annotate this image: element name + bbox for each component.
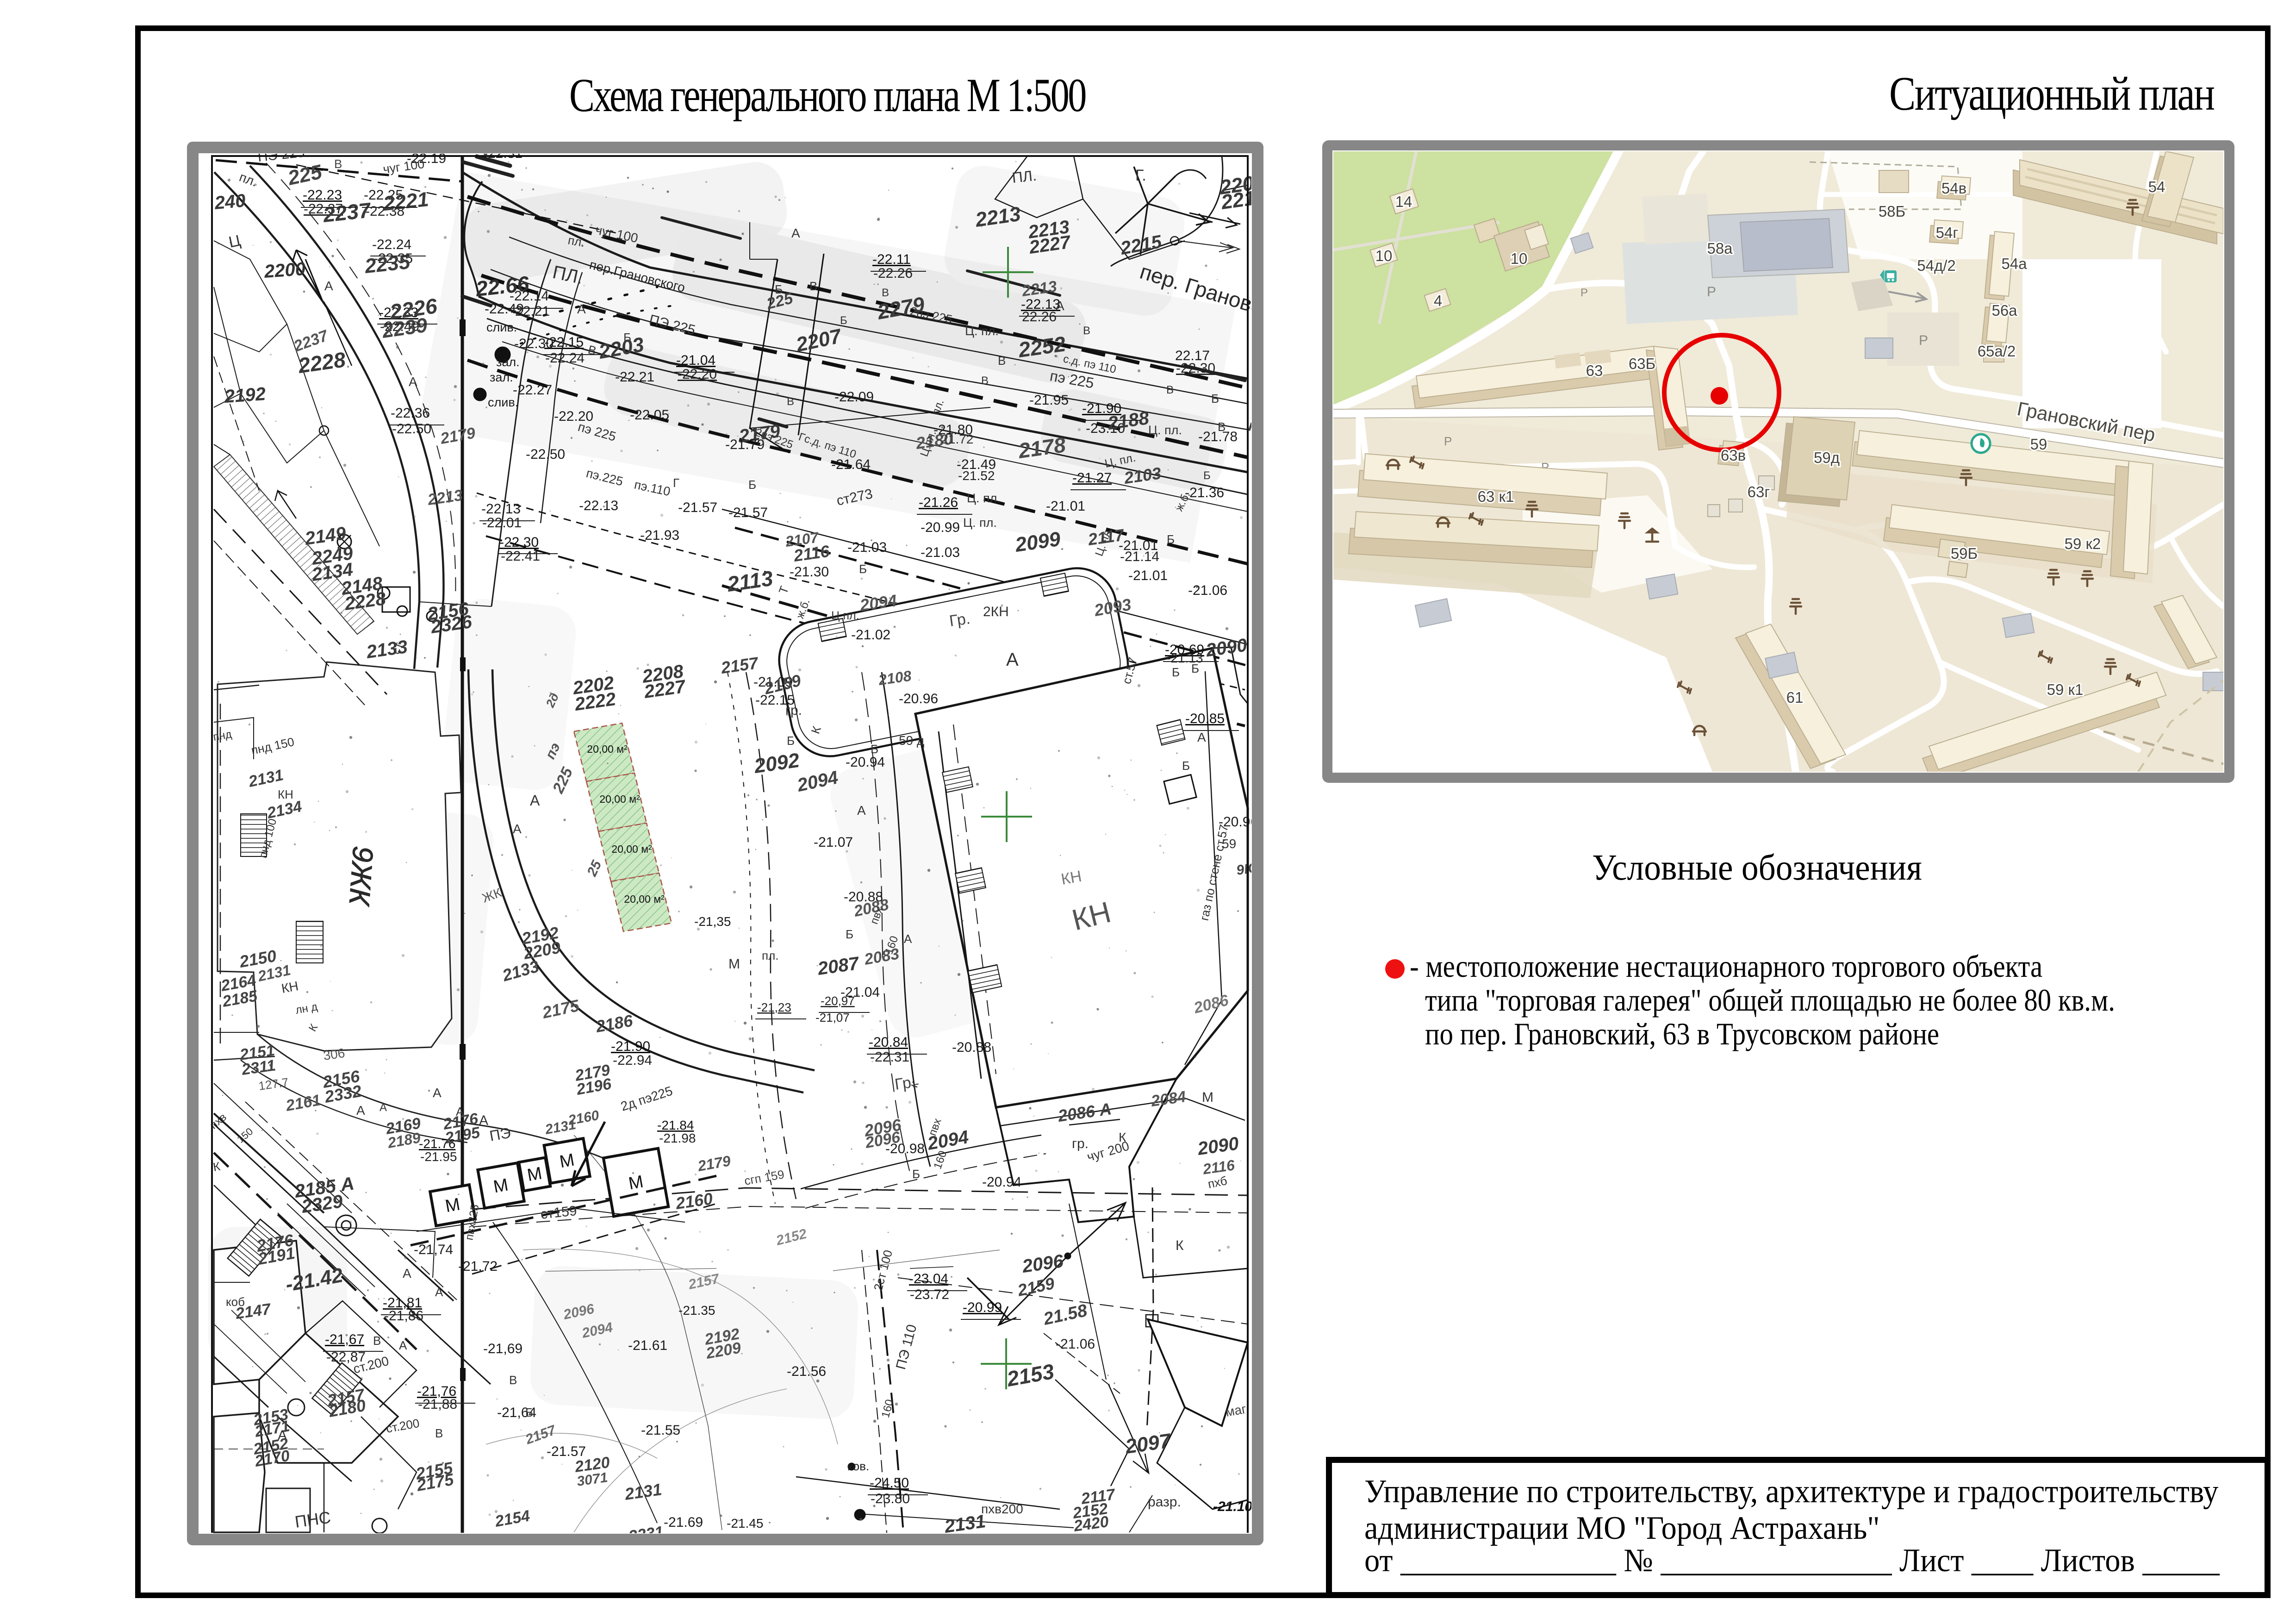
svg-text:-21.06: -21.06: [1056, 1337, 1095, 1352]
svg-text:-22.20: -22.20: [554, 409, 593, 424]
svg-text:Б: Б: [748, 478, 756, 492]
svg-text:-20.88: -20.88: [952, 1040, 991, 1055]
svg-text:-22.27: -22.27: [513, 382, 552, 398]
svg-text:59 д: 59 д: [899, 733, 924, 748]
svg-text:-20.85: -20.85: [1185, 711, 1225, 726]
svg-text:10: 10: [1511, 250, 1528, 267]
svg-text:65а/2: 65а/2: [1978, 343, 2016, 360]
svg-text:Р: Р: [1444, 434, 1452, 448]
svg-text:В: В: [882, 287, 889, 299]
svg-text:-21.61: -21.61: [628, 1338, 667, 1353]
svg-text:-22.15: -22.15: [544, 335, 584, 350]
svg-text:-22.50: -22.50: [526, 447, 565, 462]
svg-text:2221: 2221: [382, 188, 429, 215]
svg-text:-20.98: -20.98: [885, 1141, 925, 1156]
svg-text:А: А: [1197, 730, 1206, 744]
svg-text:А: А: [857, 803, 866, 818]
svg-text:К: К: [1176, 1238, 1184, 1253]
svg-text:-21.93: -21.93: [640, 528, 679, 543]
svg-text:-23.72: -23.72: [910, 1287, 949, 1302]
svg-text:Б: Б: [871, 742, 878, 756]
svg-text:4: 4: [1434, 292, 1442, 309]
svg-text:2192: 2192: [224, 384, 267, 407]
svg-text:-21.72: -21.72: [458, 1259, 498, 1274]
svg-text:240: 240: [213, 190, 246, 213]
svg-text:-24.50: -24.50: [870, 1475, 909, 1491]
svg-text:54: 54: [2148, 178, 2165, 195]
svg-text:гр.: гр.: [785, 703, 802, 718]
svg-text:-22.11: -22.11: [872, 252, 911, 267]
svg-text:Г: Г: [673, 476, 679, 490]
svg-text:-22.01: -22.01: [482, 515, 522, 531]
svg-text:пхв200: пхв200: [981, 1502, 1023, 1516]
svg-text:63 к1: 63 к1: [1478, 488, 1514, 505]
svg-text:К: К: [1119, 1130, 1126, 1144]
svg-text:Б: Б: [1172, 665, 1180, 679]
svg-text:В: В: [1218, 420, 1226, 434]
svg-text:В: В: [373, 1334, 381, 1348]
svg-text:Б: Б: [846, 927, 853, 941]
svg-text:А: А: [433, 1086, 442, 1100]
svg-text:А: А: [1006, 650, 1019, 670]
svg-text:58а: 58а: [1707, 240, 1733, 257]
svg-text:63в: 63в: [1721, 447, 1746, 464]
svg-text:Ц.пл.: Ц.пл.: [831, 609, 859, 622]
svg-text:В: В: [334, 157, 342, 171]
svg-text:-22.21: -22.21: [615, 369, 654, 385]
svg-text:-23.04: -23.04: [909, 1271, 948, 1287]
svg-text:-21.98: -21.98: [659, 1131, 696, 1145]
svg-text:А: А: [356, 1103, 365, 1118]
svg-text:10: 10: [1375, 247, 1393, 264]
svg-text:-21.84: -21.84: [657, 1118, 694, 1132]
svg-text:-21.06: -21.06: [1188, 583, 1227, 598]
svg-text:Б: Б: [912, 1167, 920, 1181]
svg-text:59 к2: 59 к2: [2065, 535, 2101, 552]
svg-text:-21.03: -21.03: [847, 540, 887, 555]
svg-text:-22.24: -22.24: [372, 237, 411, 252]
svg-text:А: А: [791, 226, 800, 240]
svg-text:-20.94: -20.94: [846, 755, 885, 770]
svg-text:-21.90: -21.90: [611, 1039, 650, 1054]
svg-text:Б: Б: [1167, 532, 1175, 546]
svg-text:М: М: [728, 956, 740, 972]
svg-text:Б: Б: [859, 562, 867, 576]
svg-text:20,00 м²: 20,00 м²: [599, 793, 640, 805]
svg-text:пл.: пл.: [567, 233, 586, 250]
svg-text:-21.35: -21.35: [678, 1303, 715, 1318]
svg-text:-20,97: -20,97: [821, 994, 855, 1008]
svg-text:-21.14: -21.14: [1120, 549, 1159, 564]
svg-text:20,00 м²: 20,00 м²: [587, 743, 628, 755]
svg-text:слив.: слив.: [488, 395, 518, 409]
svg-text:А: А: [324, 279, 333, 293]
svg-text:разр.: разр.: [1148, 1494, 1181, 1510]
svg-text:А: А: [1056, 299, 1064, 313]
svg-text:2200: 2200: [263, 259, 306, 282]
svg-text:-21.57: -21.57: [678, 500, 717, 515]
svg-text:14: 14: [1395, 193, 1412, 210]
svg-text:-21,35: -21,35: [694, 914, 731, 929]
svg-text:-21.52: -21.52: [958, 468, 995, 483]
svg-text:-22.05: -22.05: [630, 407, 669, 423]
svg-text:-21.45: -21.45: [727, 1516, 763, 1530]
svg-text:Гр.: Гр.: [948, 610, 971, 630]
svg-text:Б: Б: [1211, 392, 1219, 406]
svg-text:-21,67: -21,67: [325, 1332, 364, 1347]
svg-text:А: А: [513, 822, 522, 836]
svg-text:-20.99: -20.99: [963, 1300, 1002, 1315]
svg-text:63: 63: [1586, 362, 1603, 379]
svg-text:59: 59: [2030, 436, 2047, 453]
svg-text:-22.50: -22.50: [392, 421, 431, 437]
svg-text:Б: Б: [525, 1405, 533, 1419]
svg-text:-20.84: -20.84: [869, 1035, 908, 1050]
svg-text:-21,23: -21,23: [757, 1000, 791, 1014]
svg-text:54д/2: 54д/2: [1917, 257, 1955, 274]
svg-text:В: В: [509, 1373, 517, 1387]
svg-text:А: А: [530, 792, 540, 809]
svg-text:54г: 54г: [1936, 224, 1959, 241]
svg-text:-22.24: -22.24: [545, 350, 585, 366]
svg-text:гр.: гр.: [1072, 1136, 1089, 1151]
svg-text:слив.: слив.: [486, 320, 517, 334]
svg-text:-20.96: -20.96: [899, 691, 938, 706]
svg-text:пл.: пл.: [762, 949, 778, 962]
svg-text:-22.31: -22.31: [870, 1049, 909, 1065]
svg-text:-21.69: -21.69: [664, 1515, 703, 1530]
svg-text:Б: Б: [840, 314, 847, 327]
svg-text:ков.: ков.: [847, 1459, 869, 1473]
svg-text:-22.13: -22.13: [579, 498, 618, 513]
svg-text:М: М: [1202, 1090, 1213, 1105]
svg-text:59 к1: 59 к1: [2047, 681, 2084, 698]
svg-text:63Б: 63Б: [1629, 355, 1655, 372]
svg-text:20,00 м²: 20,00 м²: [611, 843, 652, 855]
svg-text:Р: Р: [1919, 333, 1928, 348]
svg-text:Б: Б: [1191, 662, 1199, 675]
svg-text:-21.64: -21.64: [831, 457, 871, 472]
svg-text:-21.27: -21.27: [1072, 470, 1112, 486]
svg-text:КН: КН: [1060, 868, 1083, 888]
svg-text:А: А: [380, 1101, 387, 1114]
svg-text:58Б: 58Б: [1879, 203, 1905, 220]
svg-text:Ц. пл.: Ц. пл.: [1148, 423, 1182, 437]
svg-text:зал.: зал.: [496, 355, 520, 369]
svg-text:61: 61: [1786, 689, 1804, 706]
svg-text:-22.94: -22.94: [613, 1053, 652, 1068]
svg-text:-21.03: -21.03: [921, 545, 960, 560]
svg-text:59Б: 59Б: [1951, 545, 1978, 562]
svg-text:-22.23: -22.23: [303, 187, 342, 203]
svg-text:-23.80: -23.80: [871, 1491, 910, 1506]
svg-text:-21.01: -21.01: [1046, 499, 1085, 514]
svg-text:-21.07: -21.07: [814, 835, 853, 850]
svg-text:-21.55: -21.55: [641, 1423, 680, 1438]
svg-text:-21,69: -21,69: [483, 1341, 523, 1356]
svg-text:56а: 56а: [1991, 302, 2017, 319]
svg-text:В: В: [435, 1426, 443, 1440]
svg-text:В: В: [809, 279, 817, 293]
svg-text:А: А: [435, 1285, 443, 1299]
svg-text:В: В: [1166, 384, 1174, 396]
svg-text:А: А: [904, 932, 912, 946]
svg-text:2237: 2237: [322, 198, 373, 227]
svg-text:-21,74: -21,74: [414, 1242, 453, 1257]
svg-text:зал.: зал.: [490, 370, 513, 384]
svg-text:-21.72: -21.72: [937, 432, 973, 446]
svg-text:Ц. пл.: Ц. пл.: [967, 491, 1001, 505]
svg-text:Б: Б: [1182, 759, 1190, 773]
svg-text:В: В: [787, 395, 794, 408]
svg-text:Б: Б: [1203, 469, 1211, 482]
svg-text:-21.30: -21.30: [790, 564, 829, 580]
svg-text:ПЛ.: ПЛ.: [1011, 167, 1037, 186]
svg-text:А: А: [577, 302, 586, 316]
svg-text:-20.94: -20.94: [982, 1174, 1021, 1190]
svg-text:-20.99: -20.99: [921, 520, 960, 535]
svg-text:-22.20: -22.20: [678, 367, 717, 382]
svg-text:-21.04: -21.04: [676, 353, 716, 368]
svg-text:В: В: [1083, 325, 1090, 337]
svg-text:В: В: [981, 375, 989, 387]
svg-text:А: А: [409, 375, 417, 389]
svg-text:Р: Р: [1580, 287, 1588, 299]
svg-text:2235: 2235: [363, 250, 411, 278]
svg-text:-21.56: -21.56: [787, 1364, 826, 1379]
svg-text:А: А: [399, 1338, 407, 1352]
svg-text:А: А: [403, 1266, 411, 1280]
svg-text:-21.01: -21.01: [1128, 568, 1168, 583]
svg-text:-22.09: -22.09: [834, 389, 874, 405]
svg-text:306: 306: [323, 1046, 346, 1063]
svg-text:КН: КН: [280, 979, 299, 996]
svg-text:-22.30: -22.30: [1176, 361, 1215, 376]
svg-text:Ц. пл.: Ц. пл.: [965, 324, 999, 338]
svg-text:-21,88: -21,88: [418, 1397, 457, 1412]
svg-text:-21.02: -21.02: [851, 627, 890, 643]
svg-text:Ц. пл.: Ц. пл.: [963, 516, 997, 530]
svg-text:-22.21: -22.21: [510, 304, 550, 319]
svg-text:63г: 63г: [1748, 483, 1770, 500]
svg-text:54а: 54а: [2001, 255, 2027, 272]
svg-text:-22.30: -22.30: [499, 535, 539, 550]
svg-text:А: А: [479, 1113, 488, 1128]
svg-text:22.26: 22.26: [1022, 309, 1057, 325]
svg-text:2КН: 2КН: [983, 604, 1009, 619]
svg-text:-21.57: -21.57: [728, 505, 768, 520]
svg-text:-22.36: -22.36: [391, 406, 430, 421]
svg-text:-22.41: -22.41: [501, 549, 540, 564]
svg-text:-21.57: -21.57: [547, 1444, 586, 1459]
svg-text:20,00 м²: 20,00 м²: [624, 893, 665, 905]
svg-text:-21.95: -21.95: [420, 1149, 457, 1164]
svg-text:-21.26: -21.26: [919, 495, 958, 510]
svg-text:Г.: Г.: [1135, 167, 1146, 184]
svg-text:-21.95: -21.95: [1029, 393, 1069, 408]
svg-text:-21.10: -21.10: [1213, 1499, 1252, 1514]
svg-text:Р: Р: [1707, 284, 1716, 300]
svg-text:59д: 59д: [1814, 449, 1840, 466]
svg-text:В: В: [998, 354, 1006, 368]
svg-text:-22.13: -22.13: [481, 501, 521, 517]
svg-text:-22.26: -22.26: [873, 266, 913, 281]
svg-text:54в: 54в: [1941, 180, 1966, 197]
svg-text:Б: Б: [787, 734, 795, 748]
svg-text:9ЖК: 9ЖК: [343, 845, 379, 908]
